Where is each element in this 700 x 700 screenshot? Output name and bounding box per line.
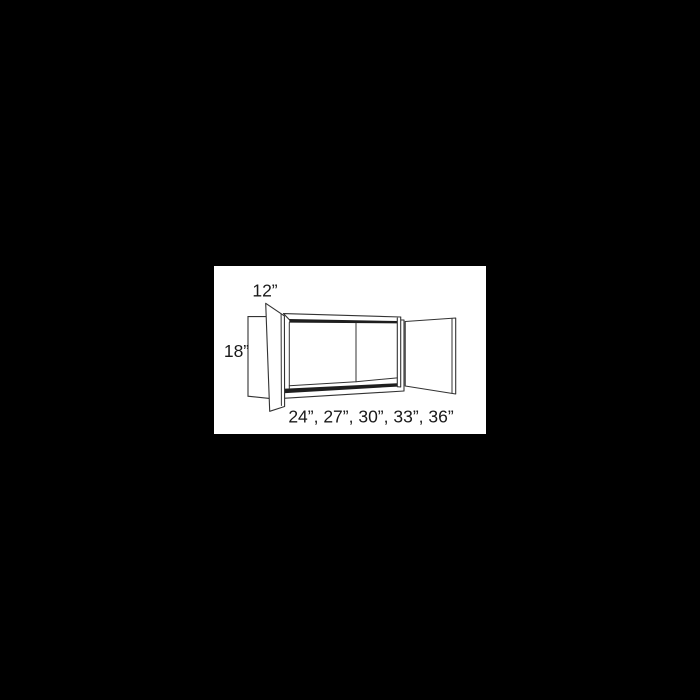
cabinet-drawing: 12” 18” 24”, 27”, 30”, 33”, 36” (214, 266, 486, 434)
cabinet-top-outer-edge (284, 314, 401, 320)
width-options-label: 24”, 27”, 30”, 33”, 36” (288, 407, 454, 427)
height-dimension-label: 18” (224, 341, 249, 361)
canvas-background: 12” 18” 24”, 27”, 30”, 33”, 36” (0, 0, 700, 700)
cabinet-top-rail-band (289, 319, 397, 323)
right-door (405, 318, 456, 394)
diagram-panel: 12” 18” 24”, 27”, 30”, 33”, 36” (214, 266, 486, 434)
cabinet-right-stile (397, 317, 404, 391)
depth-dimension-label: 12” (252, 281, 277, 301)
